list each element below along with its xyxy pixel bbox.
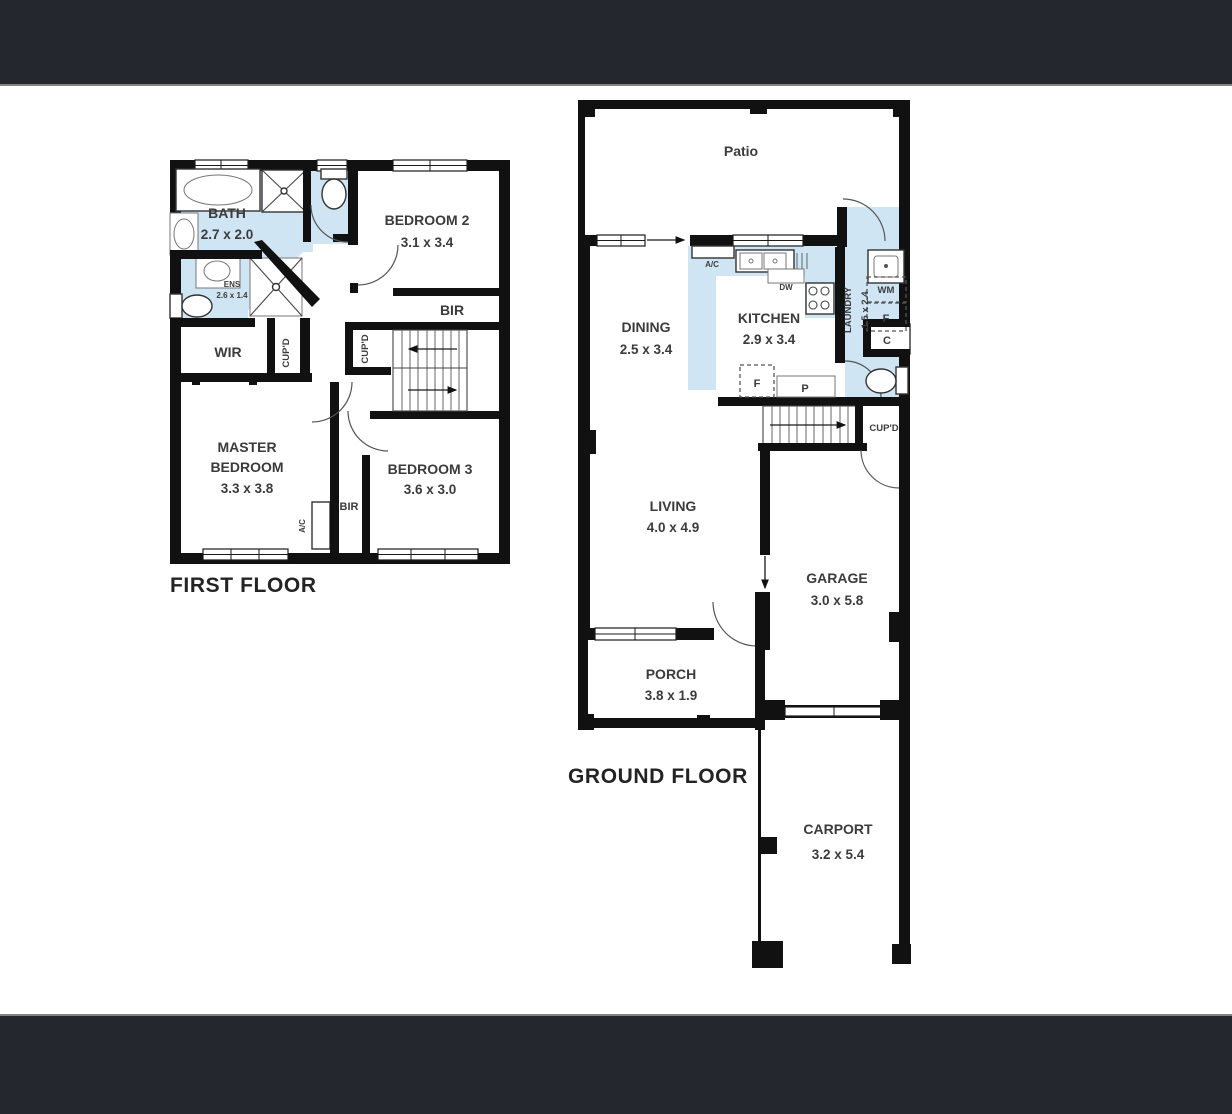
master-label-line2: BEDROOM: [210, 459, 283, 475]
stairs-bottom-wall: [758, 443, 867, 451]
ens-toilet: [170, 294, 212, 318]
garage-label: GARAGE: [806, 570, 867, 586]
porch-label: PORCH: [646, 666, 697, 682]
master-window: [203, 549, 288, 560]
porch-dims: 3.8 x 1.9: [645, 688, 698, 703]
bedroom3-window: [378, 549, 478, 560]
front-door-arc: [713, 602, 757, 646]
kitchen-window: [733, 235, 803, 246]
laundry-label: LAUNDRY: [843, 286, 854, 333]
powder-toilet: [866, 367, 908, 394]
living-label: LIVING: [650, 498, 697, 514]
bedroom2-window: [393, 160, 467, 171]
wc-toilet: [321, 169, 347, 209]
living-bottom-wall: [578, 592, 770, 650]
bath-label: BATH: [208, 205, 246, 221]
kitchen-dims: 2.9 x 3.4: [743, 332, 796, 347]
bedroom2-label: BEDROOM 2: [385, 212, 470, 228]
ground-floor-plan: Patio DINING 2.5 x 3.4 KITCHEN 2.9 x 3.4…: [568, 100, 911, 968]
ac-first-floor-label: A/C: [298, 519, 307, 533]
laundry-fridge-label: F: [883, 313, 890, 325]
wir-label: WIR: [214, 344, 241, 360]
wm-label: WM: [878, 285, 895, 296]
patio-label: Patio: [724, 143, 758, 159]
living-dims: 4.0 x 4.9: [647, 520, 700, 535]
kitchen-fridge-label: F: [754, 378, 761, 390]
kitchen-label: KITCHEN: [738, 310, 800, 326]
living-garage-divider: [760, 443, 770, 555]
bir-bed2-label: BIR: [440, 302, 464, 318]
floorplan-image: BATH 2.7 x 2.0 ENS 2.6 x 1.4 WIR CUP'D C…: [0, 0, 1232, 1112]
bath-dims: 2.7 x 2.0: [201, 227, 254, 242]
cupd-ground-label: CUP'D: [869, 423, 898, 434]
stove: [806, 283, 834, 314]
first-floor-title: FIRST FLOOR: [170, 574, 317, 597]
ground-floor-stairs: [763, 406, 857, 444]
carport-structure: [752, 720, 911, 968]
laundry-dims: 1.5 x 2.4: [860, 291, 871, 329]
ens-dims: 2.6 x 1.4: [216, 291, 248, 300]
first-floor-plan: BATH 2.7 x 2.0 ENS 2.6 x 1.4 WIR CUP'D C…: [170, 160, 505, 597]
bedroom3-label: BEDROOM 3: [388, 461, 473, 477]
master-dims: 3.3 x 3.8: [221, 481, 274, 496]
left-wall: [578, 246, 590, 640]
cupd-left-label: CUP'D: [281, 338, 292, 367]
cupd-mid-label: CUP'D: [360, 334, 371, 363]
first-floor-stairs: [393, 330, 467, 411]
laundry-entry-area: [843, 207, 899, 247]
cupd-door-arc: [861, 450, 899, 488]
bedroom3-dims: 3.6 x 3.0: [404, 482, 457, 497]
dining-label: DINING: [622, 319, 671, 335]
master-ac-unit: [312, 502, 330, 549]
right-wall: [899, 100, 910, 720]
bedroom2-dims: 3.1 x 3.4: [401, 235, 454, 250]
dining-dims: 2.5 x 3.4: [620, 342, 673, 357]
ens-label: ENS: [224, 280, 241, 289]
garage-dims: 3.0 x 5.8: [811, 593, 864, 608]
living-window: [595, 628, 676, 640]
master-label-line1: MASTER: [217, 439, 276, 455]
ground-floor-title: GROUND FLOOR: [568, 765, 748, 788]
porch-walls: [578, 640, 765, 730]
cupd-left-wall: [855, 403, 863, 445]
pantry-label: P: [801, 383, 808, 395]
left-wall-pier: [590, 430, 596, 454]
bath-shower: [262, 170, 306, 212]
ac-ground-label: A/C: [705, 260, 719, 269]
kitchen-bottom-wall: [718, 397, 910, 406]
kitchen-ac-unit: [692, 246, 734, 258]
dishwasher: [768, 269, 804, 283]
laundry-door-stub-wall: [837, 207, 847, 247]
garage-right-pier: [889, 612, 899, 642]
laundry-tub: [868, 250, 904, 283]
dw-label: DW: [779, 283, 793, 292]
bir-master-label: BIR: [340, 501, 359, 513]
carport-label: CARPORT: [803, 821, 873, 837]
c-closet-label: C: [883, 335, 891, 347]
garage-bottom-wall: [758, 700, 910, 720]
bath-vanity: [170, 213, 198, 255]
carport-dims: 3.2 x 5.4: [812, 847, 865, 862]
bedroom2-door-arc: [358, 245, 398, 285]
dining-window: [597, 235, 645, 246]
